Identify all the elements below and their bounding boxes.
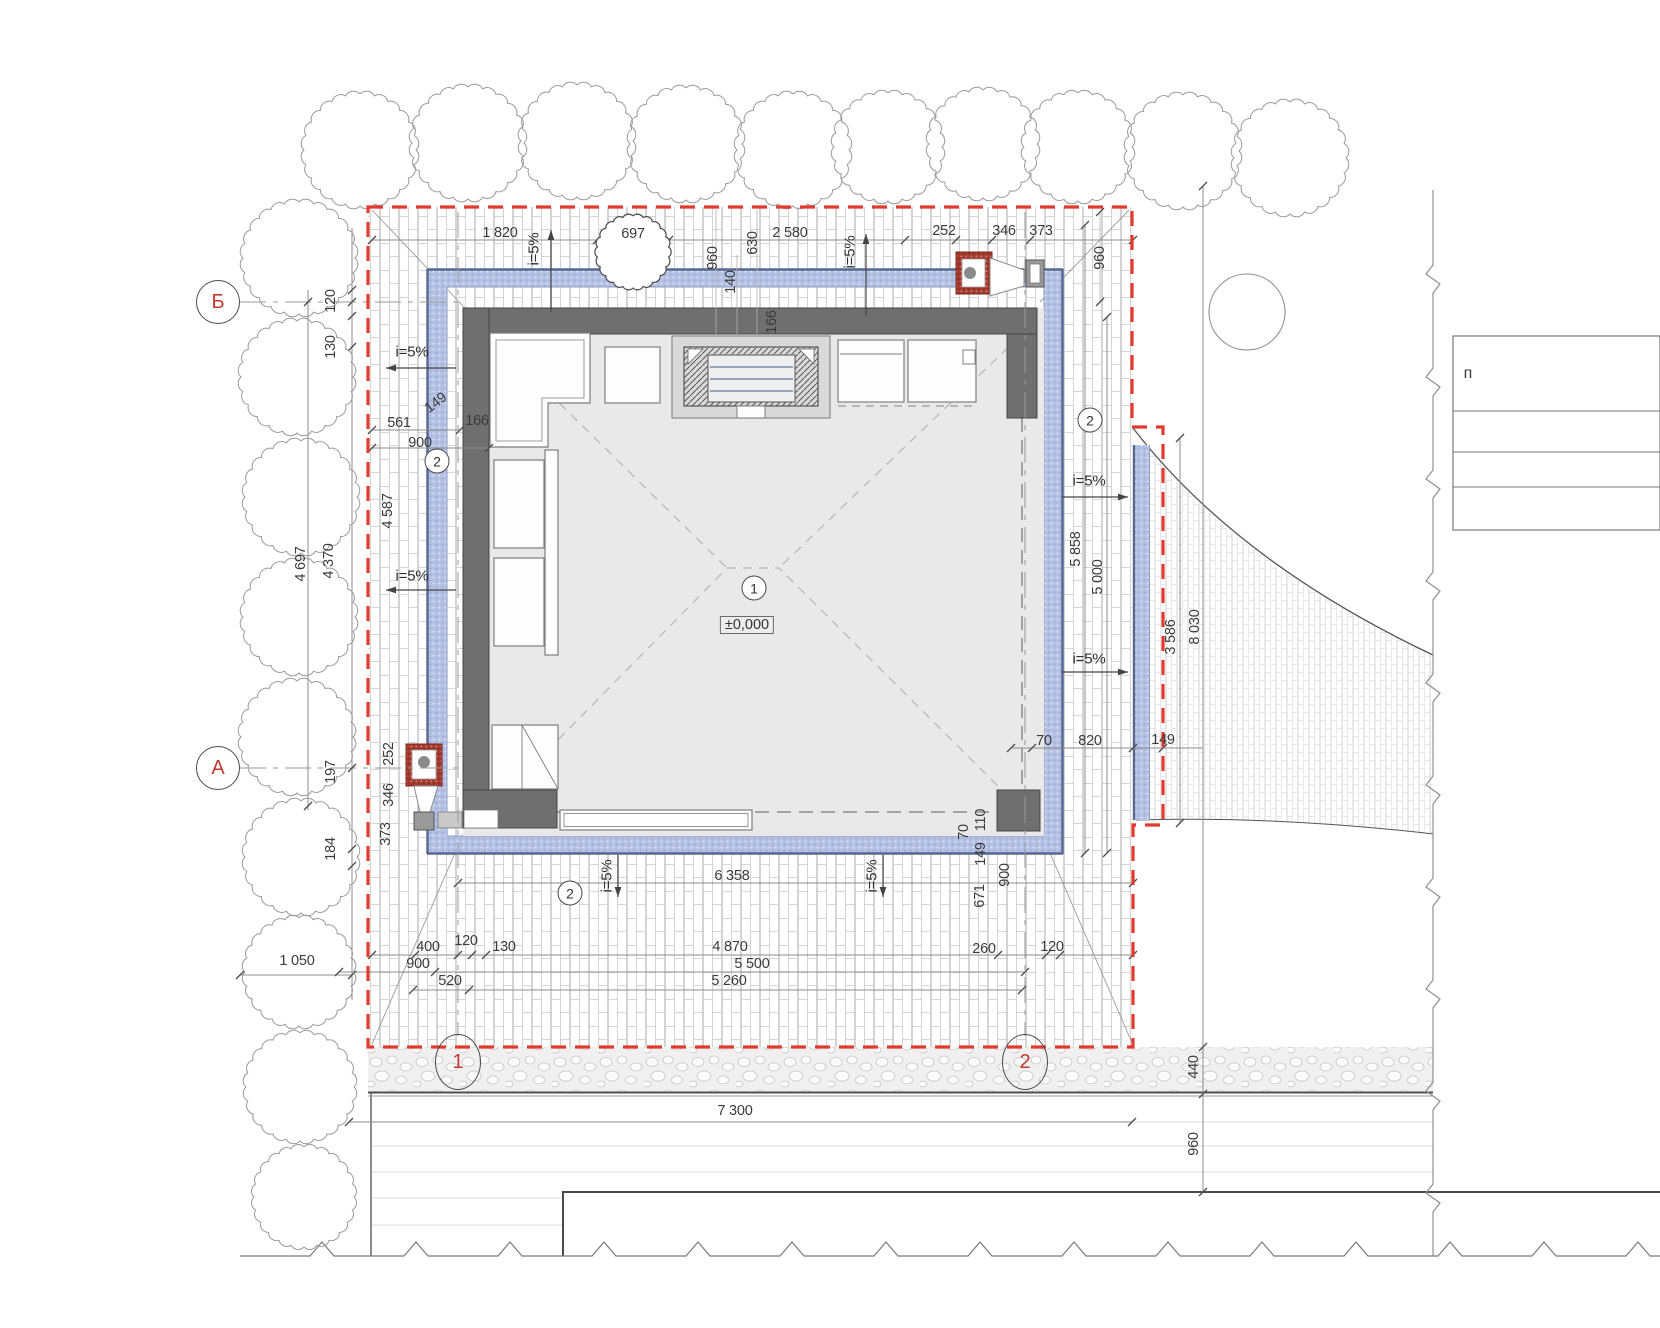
tree-symbol xyxy=(831,90,945,204)
site-plan-drawing: 1 ±0,000 п 1 8206972 5802523463739601406… xyxy=(0,0,1660,1328)
neighbour-building-outline xyxy=(563,1192,1660,1256)
pebble-strip xyxy=(368,1047,1433,1096)
tree-symbol xyxy=(252,1145,357,1250)
tree-symbol xyxy=(734,91,852,209)
tree-symbol xyxy=(242,438,360,556)
terrain-line xyxy=(240,1242,1660,1256)
sofa-seat-1 xyxy=(494,460,544,548)
tree-symbol xyxy=(240,199,358,317)
bench-bottom xyxy=(560,810,752,830)
swale-area xyxy=(1133,428,1433,834)
tree-symbol xyxy=(409,84,527,202)
tree-symbol xyxy=(1124,92,1242,210)
tree-symbol xyxy=(518,82,636,200)
tree-symbol xyxy=(1021,90,1135,204)
plan-linework xyxy=(0,0,1660,1328)
wall-top xyxy=(463,308,1037,334)
tree-symbol-right xyxy=(1209,274,1285,350)
tree-symbol-in-paving xyxy=(595,214,671,290)
counter-1 xyxy=(838,340,904,402)
pier-top-right xyxy=(1007,334,1037,418)
counter-2 xyxy=(908,340,976,402)
legend-table xyxy=(1453,336,1660,530)
tree-symbol xyxy=(627,85,745,203)
pillar-bottom-right xyxy=(997,790,1040,831)
drainage-channel-right xyxy=(1135,445,1149,820)
wall-left xyxy=(463,308,489,790)
tree-symbol xyxy=(301,91,419,209)
tree-symbol xyxy=(238,678,356,796)
corner-chair xyxy=(492,725,558,789)
tree-symbol xyxy=(238,318,356,436)
tree-symbol xyxy=(240,558,358,676)
sofa-back xyxy=(545,450,558,655)
sofa-seat-2 xyxy=(494,558,544,646)
tree-symbol xyxy=(926,87,1040,201)
pavilion xyxy=(463,308,1044,836)
tree-symbol xyxy=(242,798,360,916)
tree-symbol xyxy=(243,1030,357,1144)
tree-symbol xyxy=(1231,99,1349,217)
